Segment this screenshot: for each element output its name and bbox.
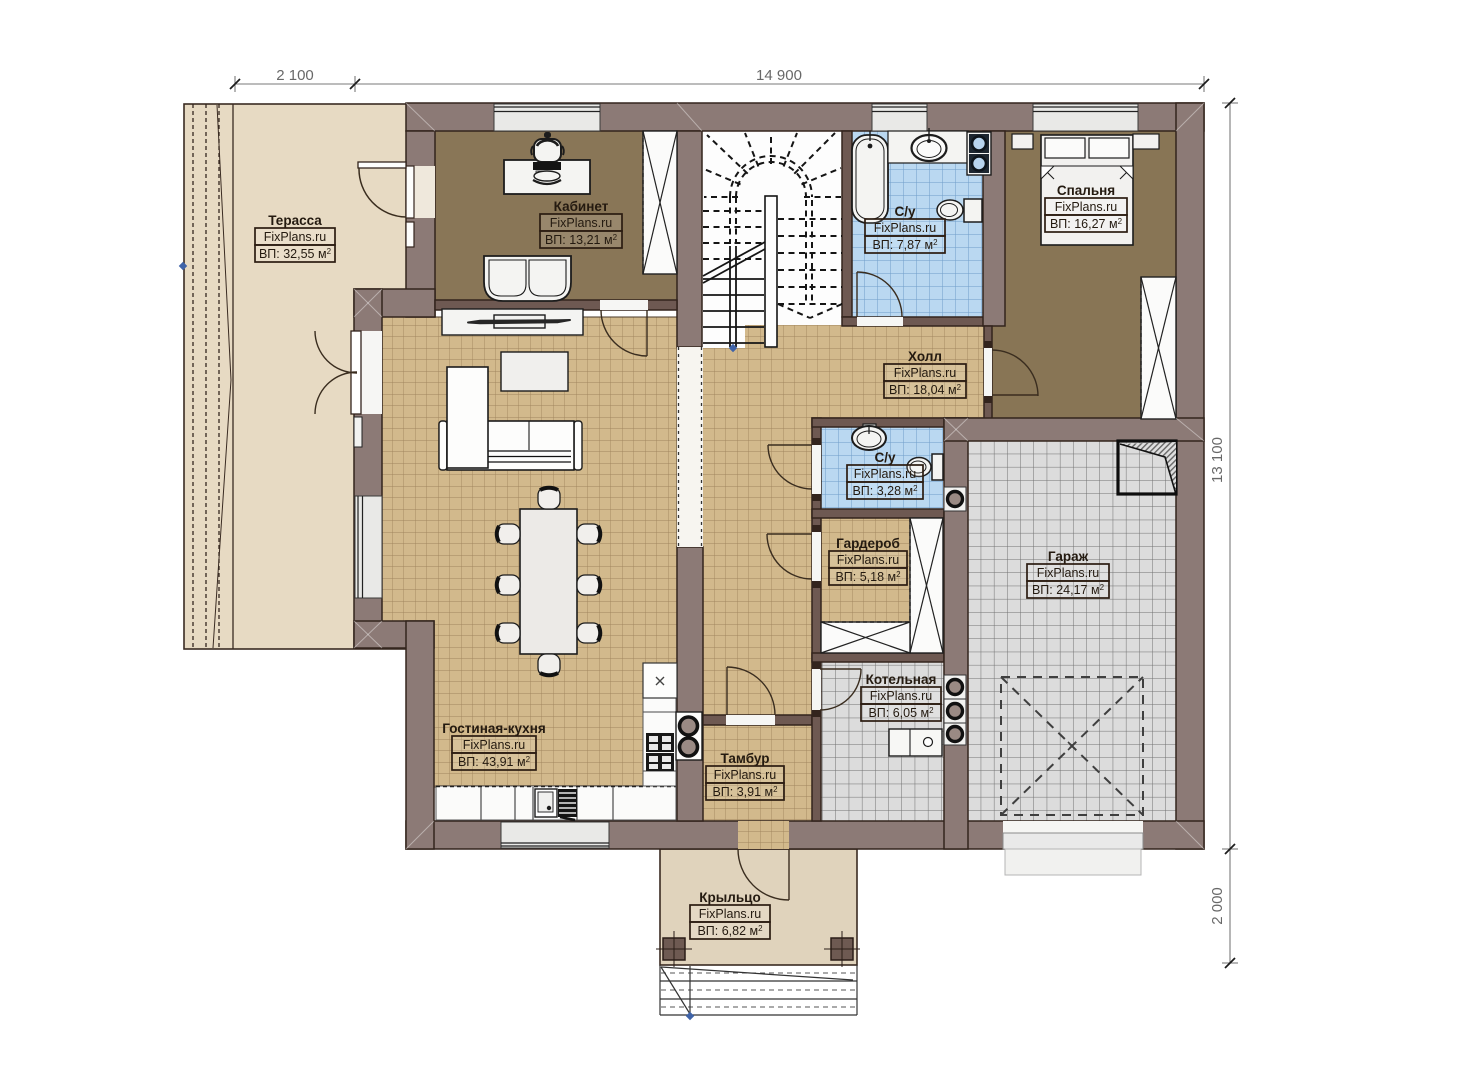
svg-text:ВП: 43,91 м2: ВП: 43,91 м2: [458, 755, 531, 769]
svg-text:ВП: 16,27 м2: ВП: 16,27 м2: [1050, 217, 1123, 231]
svg-text:FixPlans.ru: FixPlans.ru: [714, 768, 777, 782]
svg-text:Терасса: Терасса: [268, 213, 322, 228]
svg-text:ВП: 6,82 м2: ВП: 6,82 м2: [697, 924, 763, 938]
svg-text:Крыльцо: Крыльцо: [699, 890, 760, 905]
svg-text:ВП: 7,87 м2: ВП: 7,87 м2: [872, 238, 938, 252]
svg-text:ВП: 3,28 м2: ВП: 3,28 м2: [852, 484, 918, 498]
svg-text:FixPlans.ru: FixPlans.ru: [854, 467, 917, 481]
svg-text:Гостиная-кухня: Гостиная-кухня: [442, 721, 545, 736]
svg-text:2 000: 2 000: [1209, 887, 1226, 925]
svg-text:ВП: 5,18 м2: ВП: 5,18 м2: [835, 570, 901, 584]
svg-text:FixPlans.ru: FixPlans.ru: [550, 216, 613, 230]
svg-text:Кабинет: Кабинет: [554, 199, 609, 214]
svg-text:FixPlans.ru: FixPlans.ru: [264, 230, 327, 244]
svg-text:FixPlans.ru: FixPlans.ru: [837, 553, 900, 567]
svg-text:Котельная: Котельная: [866, 672, 937, 687]
svg-text:FixPlans.ru: FixPlans.ru: [463, 738, 526, 752]
svg-text:Холл: Холл: [908, 349, 942, 364]
svg-text:13 100: 13 100: [1209, 437, 1226, 483]
svg-text:ВП: 32,55 м2: ВП: 32,55 м2: [259, 247, 332, 261]
svg-text:FixPlans.ru: FixPlans.ru: [894, 366, 957, 380]
svg-text:Тамбур: Тамбур: [721, 751, 770, 766]
svg-text:С/у: С/у: [874, 450, 896, 465]
svg-text:FixPlans.ru: FixPlans.ru: [874, 221, 937, 235]
svg-text:ВП: 3,91 м2: ВП: 3,91 м2: [712, 785, 778, 799]
svg-text:14 900: 14 900: [756, 67, 802, 84]
svg-text:Гардероб: Гардероб: [836, 536, 900, 551]
svg-text:ВП: 18,04 м2: ВП: 18,04 м2: [889, 383, 962, 397]
svg-text:Гараж: Гараж: [1048, 549, 1089, 564]
svg-text:Спальня: Спальня: [1057, 183, 1115, 198]
svg-text:FixPlans.ru: FixPlans.ru: [870, 689, 933, 703]
svg-text:FixPlans.ru: FixPlans.ru: [699, 907, 762, 921]
svg-text:FixPlans.ru: FixPlans.ru: [1037, 566, 1100, 580]
svg-text:ВП: 6,05 м2: ВП: 6,05 м2: [868, 706, 934, 720]
svg-text:ВП: 13,21 м2: ВП: 13,21 м2: [545, 233, 618, 247]
svg-text:FixPlans.ru: FixPlans.ru: [1055, 200, 1118, 214]
svg-text:2 100: 2 100: [276, 67, 314, 84]
svg-text:С/у: С/у: [894, 204, 916, 219]
svg-text:ВП: 24,17 м2: ВП: 24,17 м2: [1032, 583, 1105, 597]
